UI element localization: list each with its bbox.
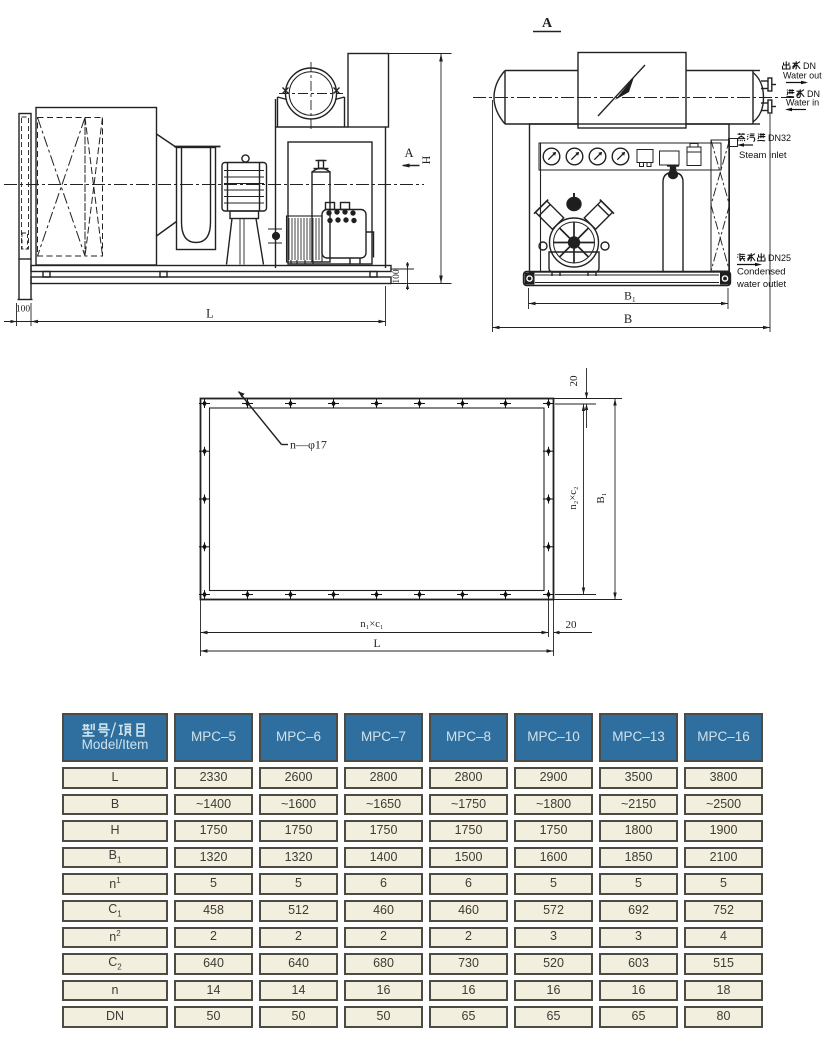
svg-text:20: 20	[568, 375, 580, 387]
svg-text:Water in: Water in	[786, 98, 819, 108]
svg-text:Water out: Water out	[783, 71, 822, 81]
svg-text:H: H	[419, 155, 433, 164]
svg-text:A: A	[542, 16, 553, 31]
svg-text:100: 100	[392, 269, 402, 284]
svg-text:n₁×c₁: n₁×c₁	[360, 619, 383, 630]
svg-text:20: 20	[566, 619, 578, 631]
svg-text:DN: DN	[803, 61, 816, 71]
svg-text:water outlet: water outlet	[736, 279, 786, 290]
svg-text:L: L	[206, 307, 214, 321]
svg-text:DN25: DN25	[768, 253, 791, 263]
svg-text:Steam inlet: Steam inlet	[739, 150, 787, 161]
svg-text:L: L	[373, 638, 380, 650]
svg-text:n—φ17: n—φ17	[290, 438, 327, 452]
svg-text:B₁: B₁	[624, 291, 636, 303]
svg-text:A: A	[404, 146, 413, 160]
svg-text:B: B	[624, 312, 632, 326]
svg-text:n₂×c₂: n₂×c₂	[568, 486, 579, 509]
svg-text:DN32: DN32	[768, 133, 791, 143]
svg-text:100: 100	[16, 305, 31, 315]
svg-text:Condensed: Condensed	[737, 267, 786, 278]
svg-text:B₁: B₁	[595, 492, 607, 503]
